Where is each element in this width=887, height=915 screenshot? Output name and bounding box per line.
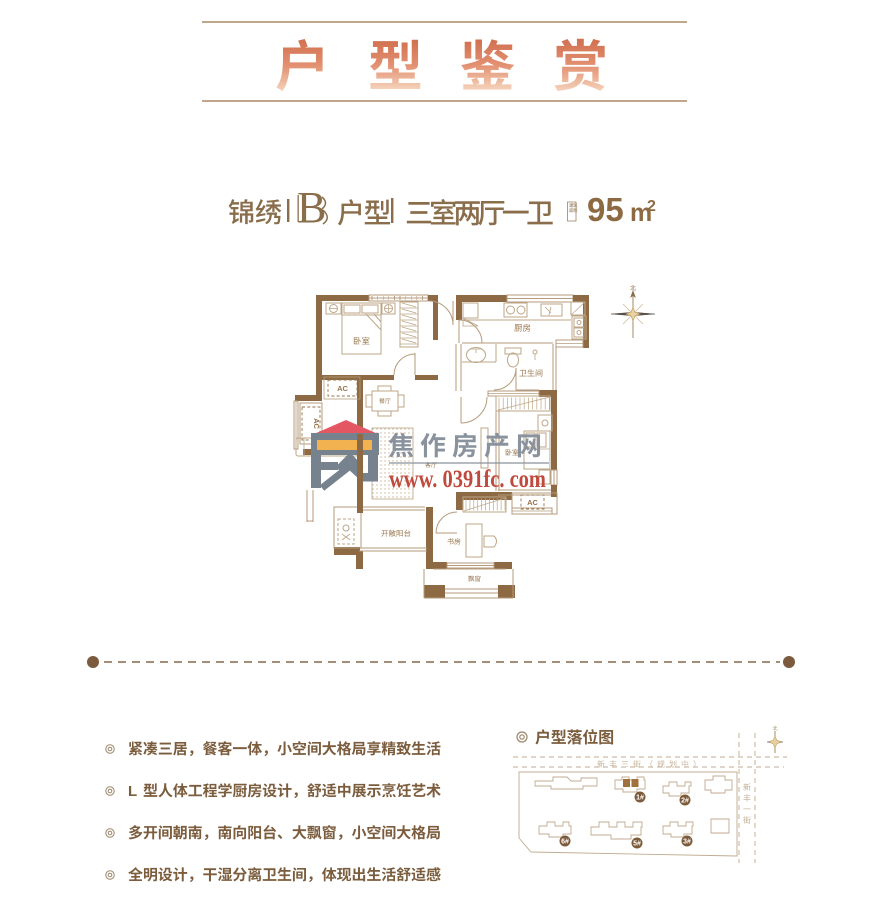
svg-text:www. 0391fc. com: www. 0391fc. com (389, 466, 546, 493)
svg-text:AC: AC (337, 384, 348, 393)
svg-text:AC: AC (527, 498, 538, 507)
svg-text:6#: 6# (561, 839, 569, 846)
svg-text:5#: 5# (633, 841, 641, 848)
svg-text:1#: 1# (636, 795, 644, 802)
svg-text:95: 95 (587, 191, 624, 228)
svg-text:L: L (128, 783, 137, 800)
svg-text:2: 2 (647, 198, 656, 215)
svg-text:2#: 2# (681, 798, 689, 805)
svg-text:3#: 3# (683, 839, 691, 846)
svg-text:B: B (297, 183, 326, 232)
svg-text:AC: AC (312, 418, 321, 429)
